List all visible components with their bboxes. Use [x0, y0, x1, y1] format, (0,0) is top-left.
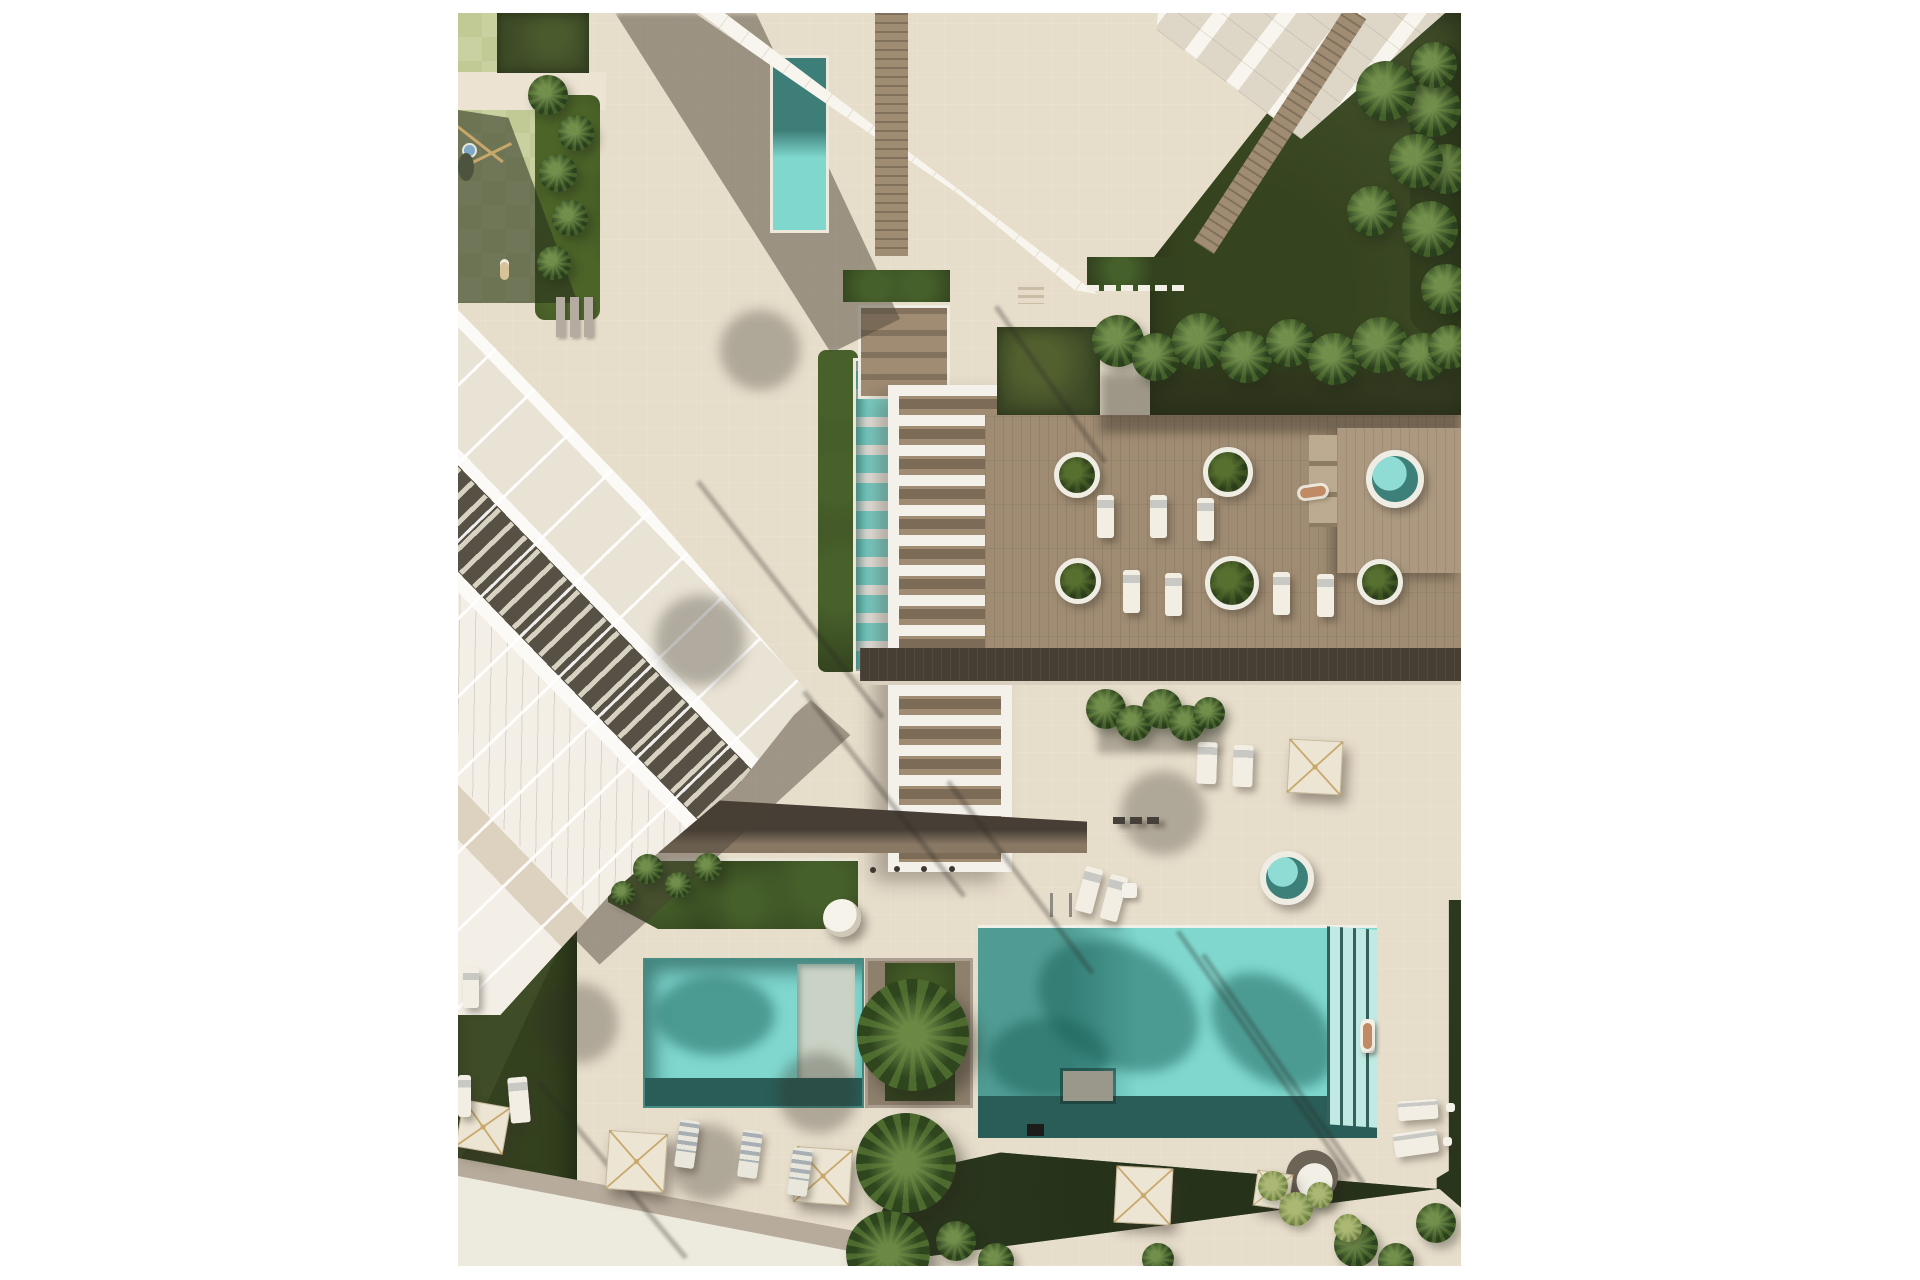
- tree-canopy: [1347, 186, 1397, 236]
- tree-canopy: [1266, 319, 1314, 367]
- tree-canopy: [528, 75, 568, 115]
- tree-canopy: [539, 154, 577, 192]
- tree-canopy: [936, 1221, 976, 1261]
- tree-canopy: [1356, 61, 1416, 121]
- tree-canopy: [665, 872, 691, 898]
- tree-canopy: [558, 115, 594, 151]
- palm-tree: [857, 979, 969, 1091]
- tree-canopy: [1402, 201, 1458, 257]
- tree-canopy: [1411, 42, 1457, 88]
- tree-canopy: [1421, 264, 1461, 314]
- palm-tree: [856, 1113, 956, 1213]
- palm-tree: [846, 1211, 930, 1266]
- tree-canopy: [552, 200, 588, 236]
- monstera-plant: [1334, 1214, 1362, 1242]
- tree-canopy: [978, 1243, 1014, 1266]
- tree-canopy: [1416, 1203, 1456, 1243]
- tree-canopy: [694, 853, 722, 881]
- tree-canopy: [1193, 697, 1225, 729]
- tree-canopy: [1142, 1243, 1174, 1266]
- aerial-render-page: [0, 0, 1920, 1280]
- monstera-plant: [1307, 1182, 1333, 1208]
- tree-canopy: [633, 854, 663, 884]
- tree-canopy: [1220, 331, 1272, 383]
- tree-canopy: [537, 246, 571, 280]
- aerial-architectural-render: [458, 13, 1461, 1266]
- tree-canopy: [611, 881, 635, 905]
- tree-canopy: [1378, 1243, 1414, 1266]
- flora-layer: [458, 13, 1461, 1266]
- tree-canopy: [1389, 134, 1443, 188]
